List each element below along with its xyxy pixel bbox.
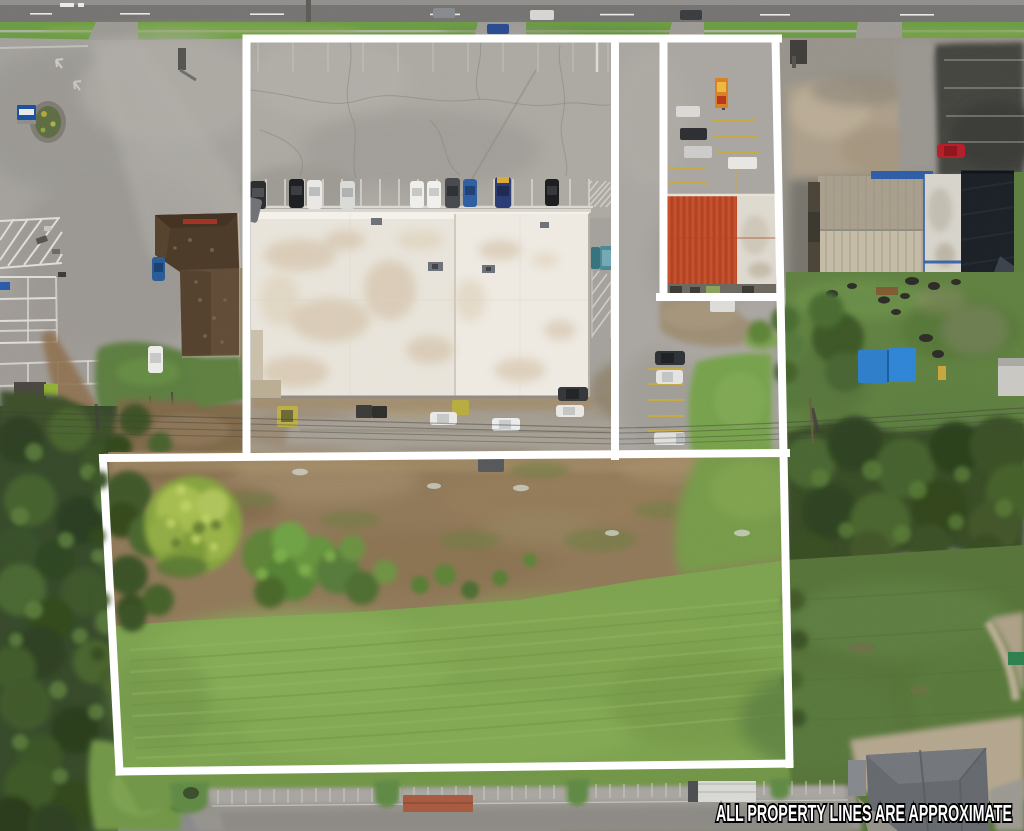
svg-text:ALL PROPERTY LINES ARE APPROXI: ALL PROPERTY LINES ARE APPROXIMATE [716,800,1012,826]
